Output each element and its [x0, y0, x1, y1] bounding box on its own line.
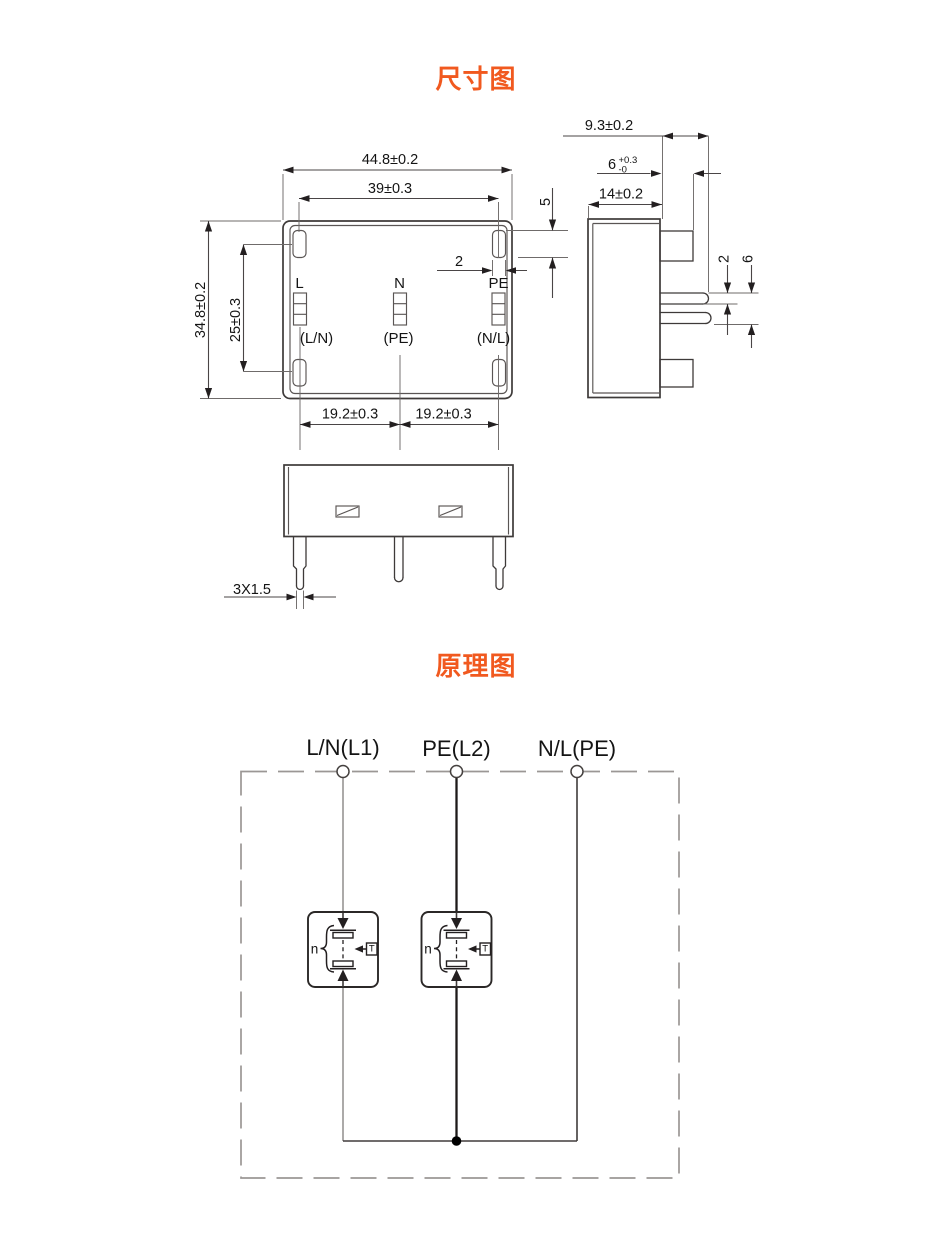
terminal-label-NL: N/L(PE): [538, 736, 616, 761]
gap-count-label: n: [424, 942, 432, 957]
junction-dot: [452, 1136, 462, 1146]
pin-PE: [492, 293, 505, 325]
dim-tab-depth-text: 6: [608, 157, 616, 173]
dim-pin-pitch-left-text: 19.2±0.3: [322, 407, 378, 423]
terminal-label-PE: PE(L2): [422, 736, 490, 761]
dim-pin-section: 3X1.5: [224, 582, 336, 609]
schematic-diagram-title: 原理图: [435, 651, 516, 681]
gap-count-label: n: [311, 942, 319, 957]
dim-pin-pitch-right-text: 19.2±0.3: [415, 407, 471, 423]
terminal-node-PE: [451, 766, 463, 778]
thermal-label: T: [369, 944, 375, 955]
thermal-label: T: [482, 944, 488, 955]
terminal-label-LN: L/N(L1): [306, 735, 379, 760]
pin-sublabel-PE: (PE): [384, 330, 414, 347]
front-view-body-outline: [283, 221, 512, 399]
terminal-node-NL: [571, 766, 583, 778]
front-view-guide-slots: [293, 231, 506, 387]
spd-unit-1: n T: [308, 912, 378, 987]
dim-body-depth: 14±0.2: [589, 187, 663, 219]
dim-slot-width: 2: [437, 254, 527, 276]
dim-slot-height: 5: [506, 188, 568, 298]
dim-overall-width-text: 44.8±0.2: [362, 152, 418, 168]
pin-label-PE: PE: [488, 275, 508, 292]
pin-label-N: N: [394, 275, 405, 292]
dim-pin-pitch-left: 19.2±0.3: [300, 407, 400, 428]
bottom-view-pins: [294, 537, 506, 590]
side-view-pins: [660, 293, 759, 325]
dim-pin-pitch-right: 19.2±0.3: [400, 407, 499, 428]
pin-N: [394, 293, 407, 325]
side-view-body-outline: [588, 219, 660, 398]
dim-tab-tol-lower-text: -0: [619, 165, 627, 176]
dim-slot-vertical-span-text: 25±0.3: [228, 298, 244, 342]
dimension-diagram-title: 尺寸图: [435, 64, 516, 94]
front-view: L N PE (L/N) (PE) (N/L) 44.8±0.2 39±0.3: [193, 152, 568, 450]
pin-sublabel-NL: (N/L): [477, 330, 510, 347]
dim-slot-span: 39±0.3: [299, 181, 499, 258]
dim-pins-span: 6: [741, 255, 757, 348]
dim-total-depth-text: 9.3±0.2: [585, 118, 633, 134]
dim-pin-thickness: 2: [717, 255, 733, 335]
pin-sublabel-LN: (L/N): [300, 330, 333, 347]
dim-pin-thickness-text: 2: [717, 255, 733, 263]
dim-pins-span-text: 6: [741, 255, 757, 263]
pin-L: [294, 293, 307, 325]
dim-pin-section-text: 3X1.5: [233, 582, 271, 598]
dim-slot-span-text: 39±0.3: [368, 181, 412, 197]
terminal-node-LN: [337, 766, 349, 778]
bottom-view-vents: [336, 506, 462, 517]
bottom-view: 3X1.5: [224, 465, 513, 609]
spd-unit-2: n T: [422, 912, 492, 987]
dim-slot-width-text: 2: [455, 254, 463, 270]
dim-overall-height-text: 34.8±0.2: [193, 282, 209, 338]
bottom-view-body-outline: [284, 465, 513, 537]
front-view-terminal-pins: [294, 293, 506, 450]
dim-body-depth-text: 14±0.2: [599, 187, 643, 203]
schematic-diagram-section: 原理图 n T: [241, 651, 679, 1178]
datasheet-drawing-page: 尺寸图: [0, 0, 930, 1252]
side-view: 9.3±0.2 6 +0.3 -0 14±0.2: [563, 118, 759, 398]
dimension-diagram-section: 尺寸图: [193, 64, 759, 609]
side-view-tabs: [660, 231, 693, 387]
pin-label-L: L: [295, 275, 303, 292]
dim-slot-height-text: 5: [538, 198, 554, 206]
technical-drawing-canvas: 尺寸图: [0, 0, 930, 1252]
